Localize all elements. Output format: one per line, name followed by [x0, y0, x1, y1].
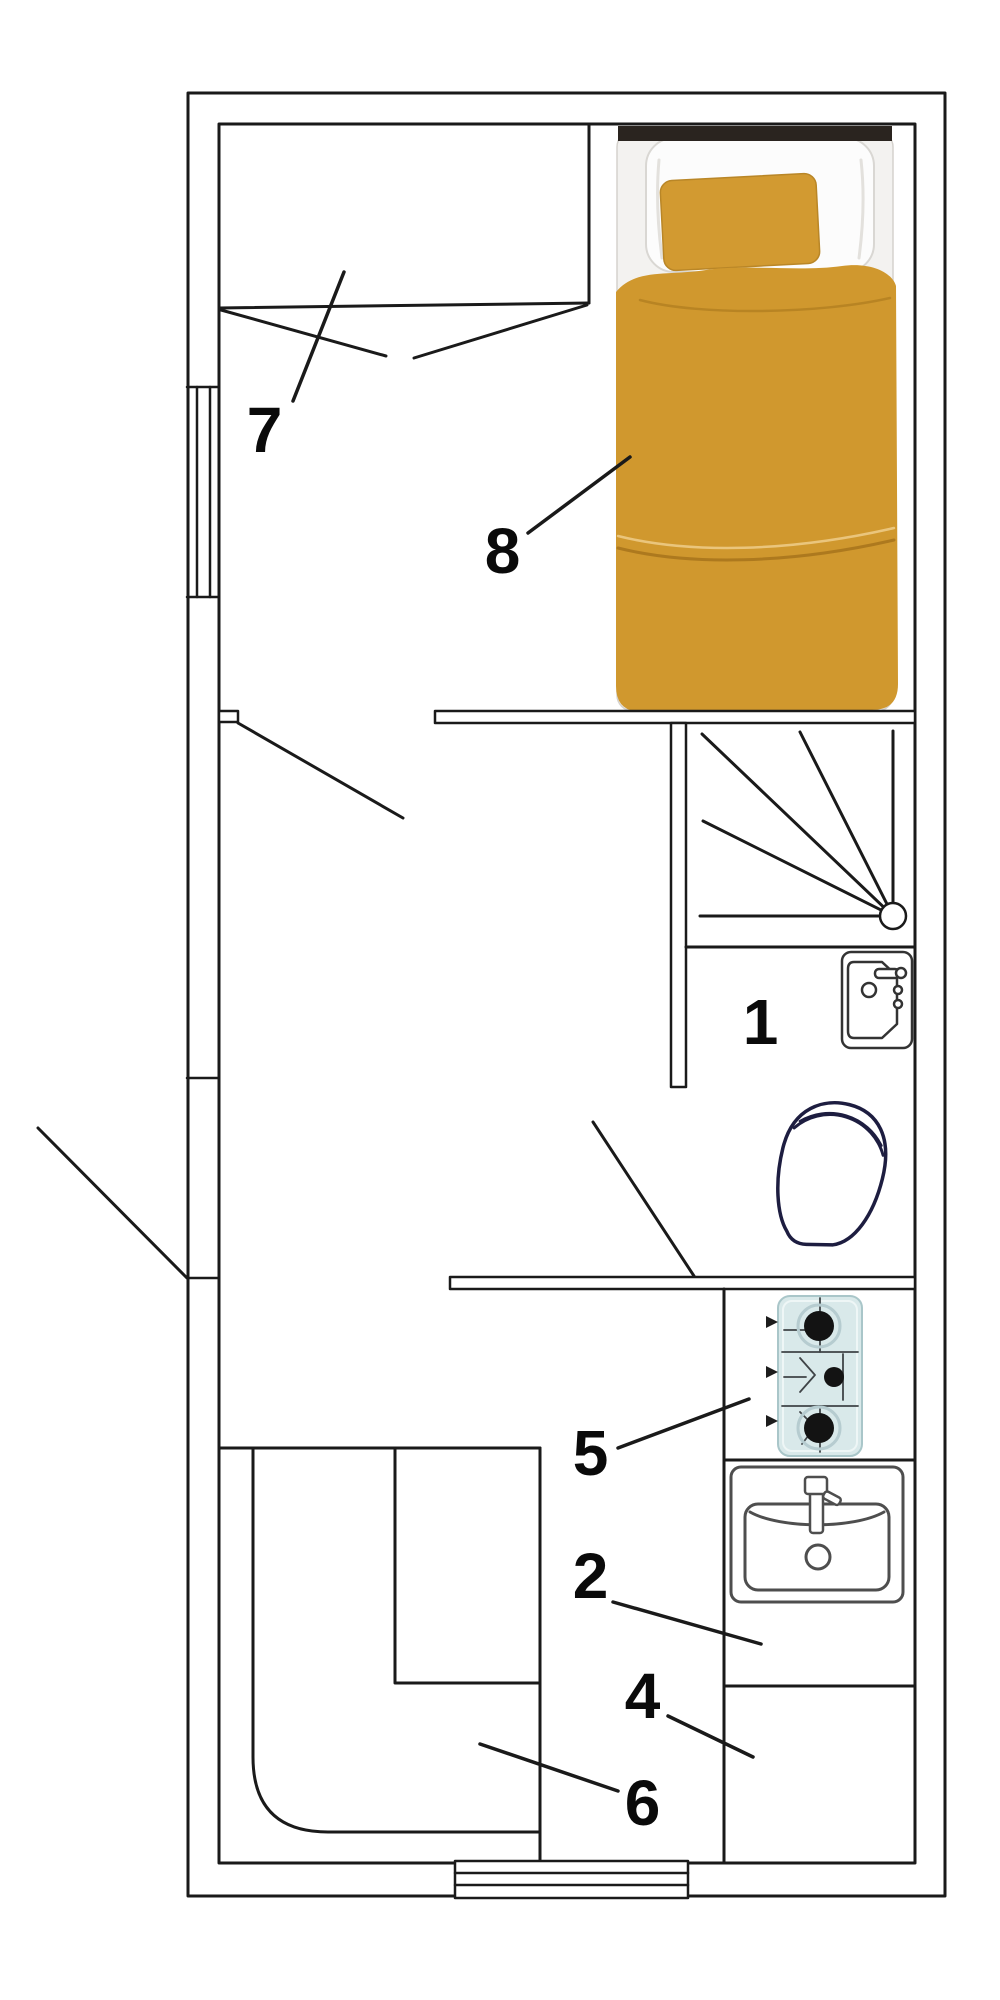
- label-corner-bench: 6: [625, 1771, 660, 1835]
- leader-7: [293, 272, 344, 401]
- washbasin: [842, 952, 912, 1048]
- bed-pillow-mustard: [660, 173, 820, 271]
- washbasin-drain: [862, 983, 876, 997]
- label-counter: 4: [625, 1664, 660, 1728]
- kitchen-sink-drain: [806, 1545, 830, 1569]
- hob-burner-large-bottom: [804, 1413, 834, 1443]
- label-washbasin: 1: [743, 990, 778, 1054]
- entry-door-icon: [38, 1078, 219, 1278]
- floor-plan-svg: [0, 0, 1000, 2000]
- leader-4: [668, 1716, 753, 1757]
- label-bed: 8: [485, 519, 520, 583]
- leader-5: [618, 1399, 749, 1448]
- label-hob: 5: [573, 1421, 608, 1485]
- leader-2: [613, 1602, 761, 1644]
- stair-newel-post: [880, 903, 906, 929]
- leader-8: [528, 457, 630, 533]
- wardrobe: [219, 124, 589, 358]
- leader-6: [480, 1744, 618, 1791]
- bathroom-door-leaf: [593, 1122, 694, 1276]
- bed-duvet: [616, 265, 898, 712]
- single-bed: [616, 126, 898, 712]
- kitchen-sink: [731, 1467, 903, 1602]
- label-wardrobe: 7: [247, 398, 282, 462]
- gas-hob: [766, 1296, 862, 1456]
- kitchen-wall: [450, 1277, 915, 1289]
- label-kitchen-sink: 2: [573, 1544, 608, 1608]
- bedroom-wall: [219, 711, 915, 818]
- corner-bench: [219, 1448, 540, 1862]
- stair-treads: [700, 731, 893, 916]
- hall-door-leaf: [238, 723, 403, 818]
- window-left-icon: [187, 387, 219, 597]
- bed-headboard: [618, 126, 892, 141]
- hob-knobs: [766, 1316, 778, 1427]
- sliding-door-icon: [455, 1861, 688, 1898]
- floor-plan-page: 1 2 4 5 6 7 8: [0, 0, 1000, 2000]
- toilet: [761, 1092, 897, 1259]
- hob-burner-large-top: [804, 1311, 834, 1341]
- hob-burner-small: [824, 1367, 844, 1387]
